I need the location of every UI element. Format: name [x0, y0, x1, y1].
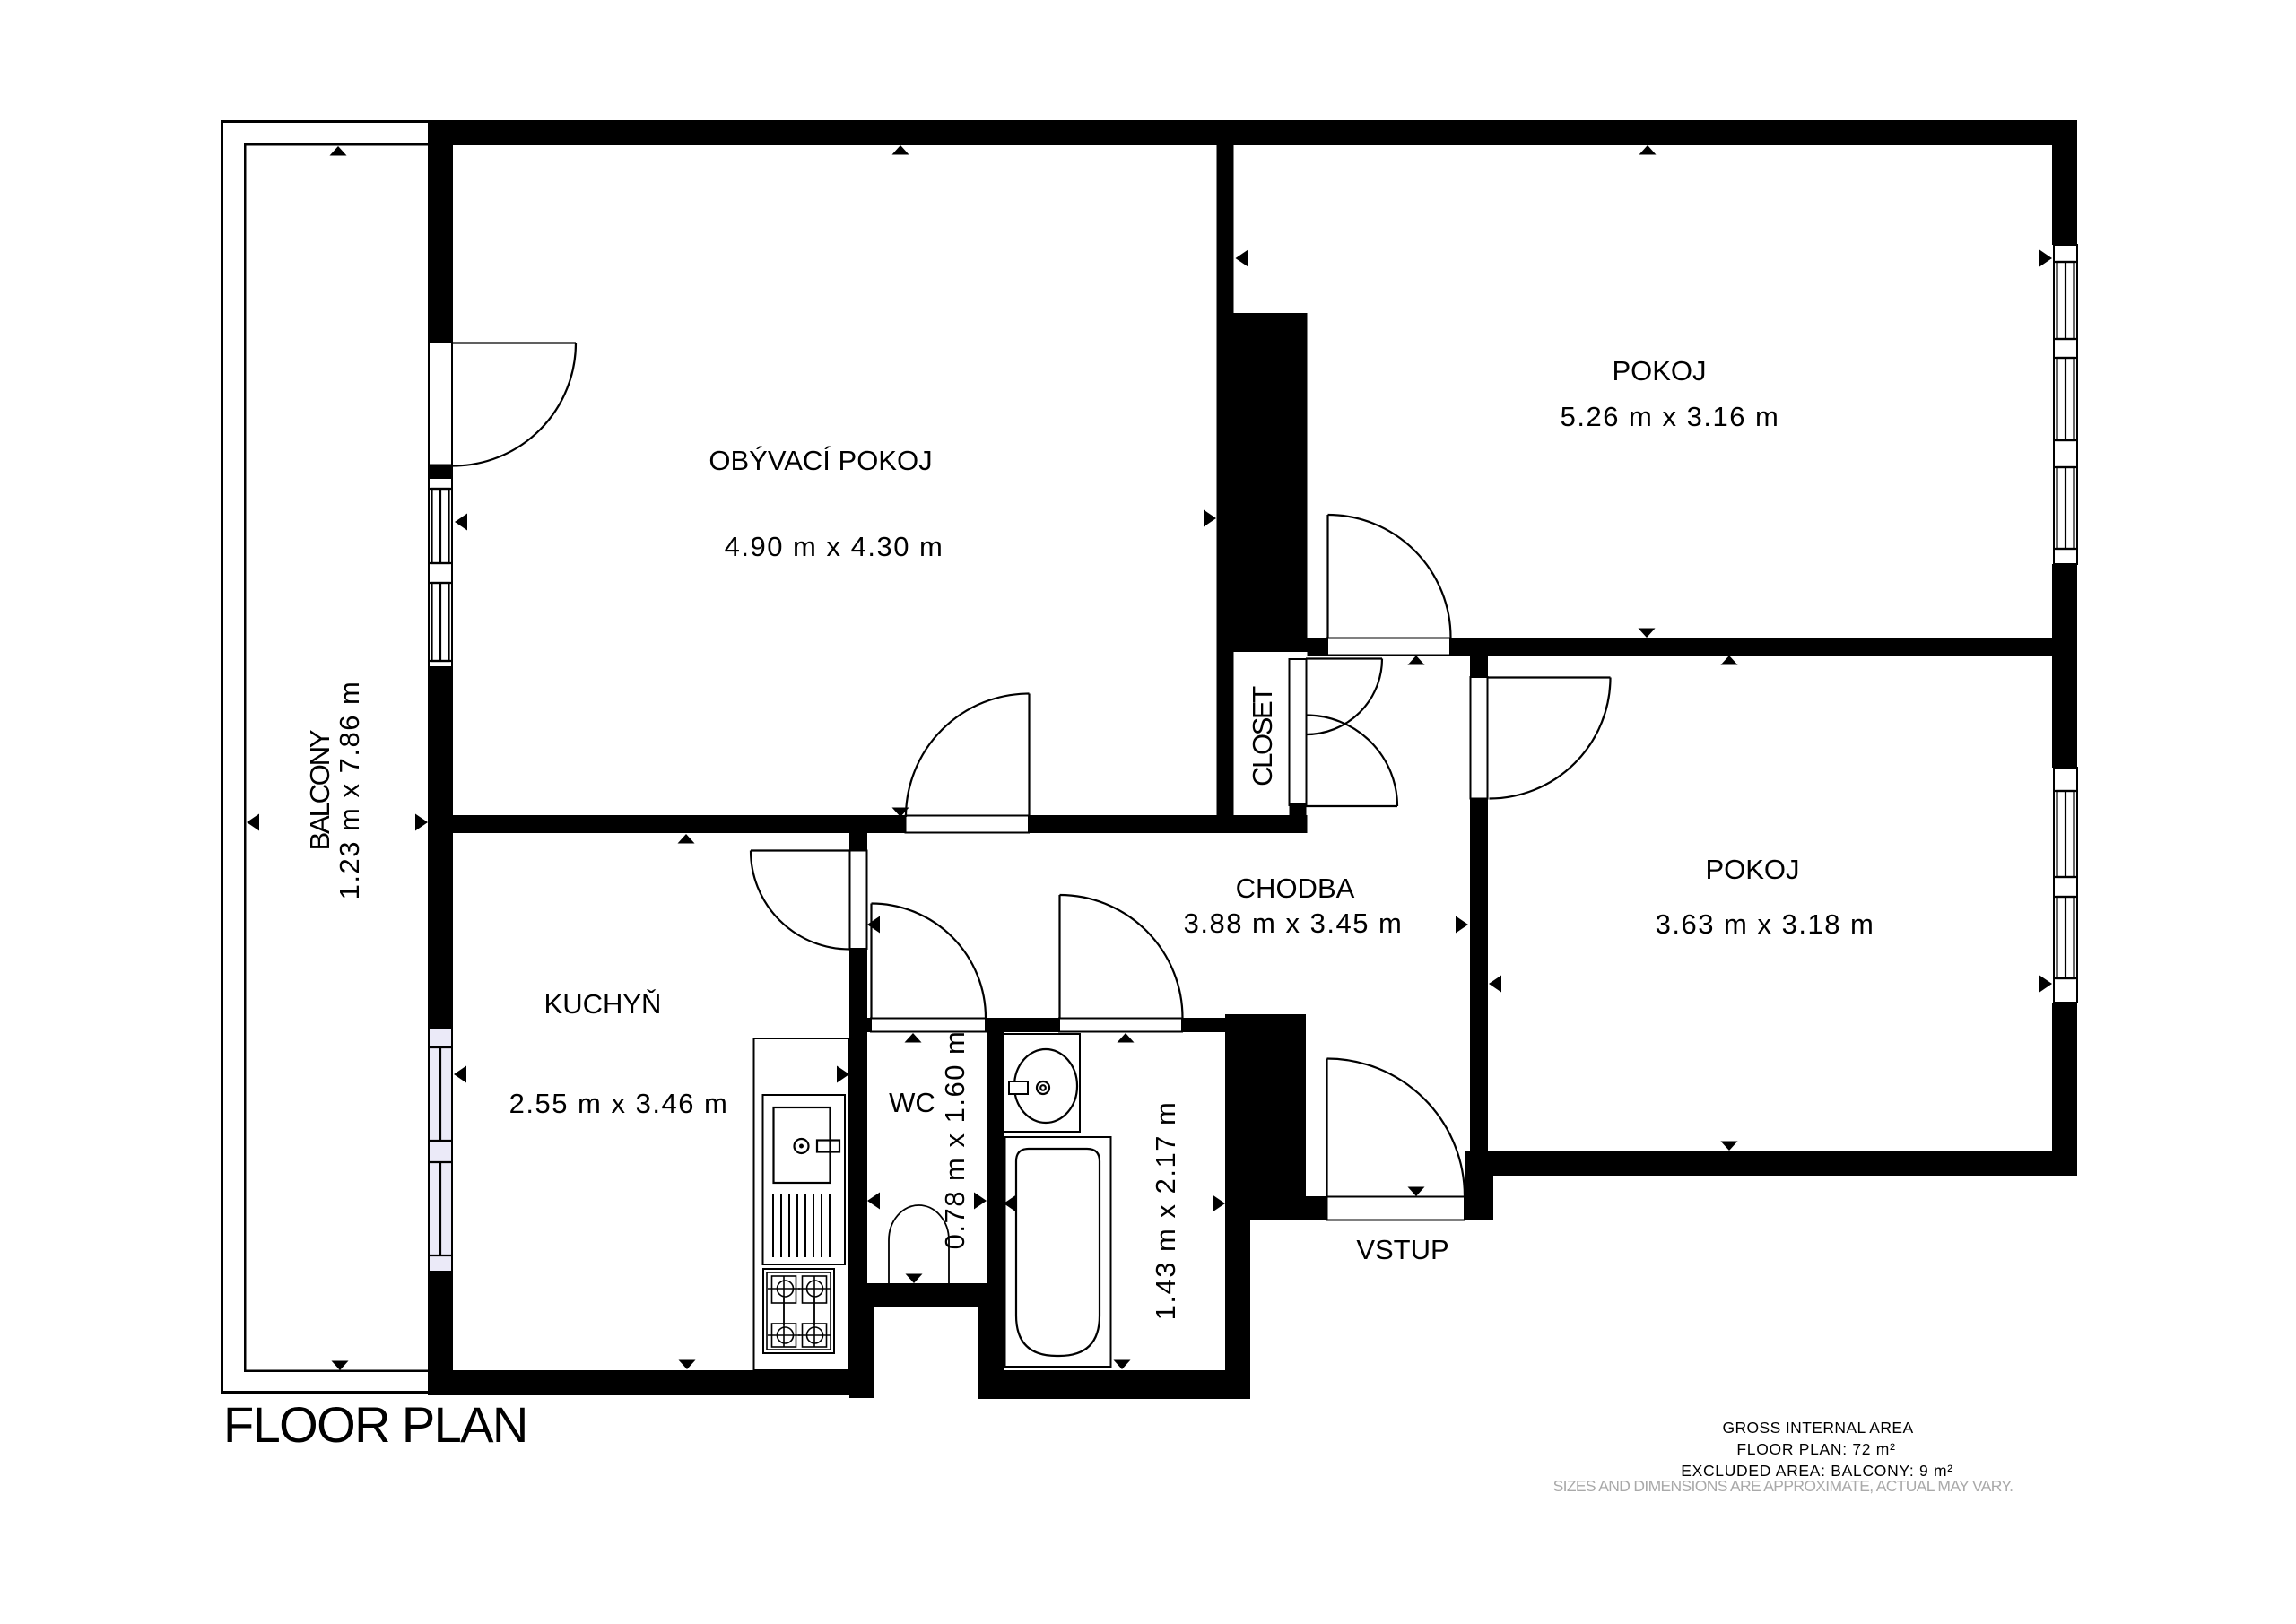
svg-text:WC: WC — [889, 1087, 935, 1118]
svg-text:1.43 m x 2.17 m: 1.43 m x 2.17 m — [1150, 1101, 1181, 1321]
svg-text:CHODBA: CHODBA — [1236, 873, 1355, 904]
svg-text:OBÝVACÍ POKOJ: OBÝVACÍ POKOJ — [709, 445, 932, 476]
svg-text:0.78 m x 1.60 m: 0.78 m x 1.60 m — [939, 1030, 970, 1250]
svg-text:1.23 m x 7.86 m: 1.23 m x 7.86 m — [334, 681, 365, 900]
svg-text:5.26 m x 3.16 m: 5.26 m x 3.16 m — [1561, 401, 1780, 432]
svg-text:GROSS INTERNAL AREA: GROSS INTERNAL AREA — [1722, 1419, 1913, 1437]
svg-text:KUCHYŇ: KUCHYŇ — [544, 988, 662, 1020]
svg-text:VSTUP: VSTUP — [1356, 1234, 1448, 1265]
svg-text:POKOJ: POKOJ — [1612, 355, 1706, 386]
svg-text:CLOSET: CLOSET — [1247, 686, 1278, 786]
svg-text:BALCONY: BALCONY — [304, 730, 335, 850]
svg-text:SIZES AND DIMENSIONS ARE APPRO: SIZES AND DIMENSIONS ARE APPROXIMATE, AC… — [1553, 1477, 2013, 1495]
svg-text:POKOJ: POKOJ — [1705, 854, 1799, 885]
svg-text:4.90 m x 4.30 m: 4.90 m x 4.30 m — [725, 531, 944, 562]
svg-text:FLOOR PLAN: FLOOR PLAN — [223, 1396, 527, 1453]
svg-text:3.63 m x 3.18 m: 3.63 m x 3.18 m — [1656, 908, 1875, 940]
svg-text:3.88 m x 3.45 m: 3.88 m x 3.45 m — [1184, 908, 1404, 939]
svg-text:2.55 m x 3.46 m: 2.55 m x 3.46 m — [509, 1088, 729, 1119]
svg-text:FLOOR PLAN: 72 m²: FLOOR PLAN: 72 m² — [1736, 1440, 1895, 1458]
